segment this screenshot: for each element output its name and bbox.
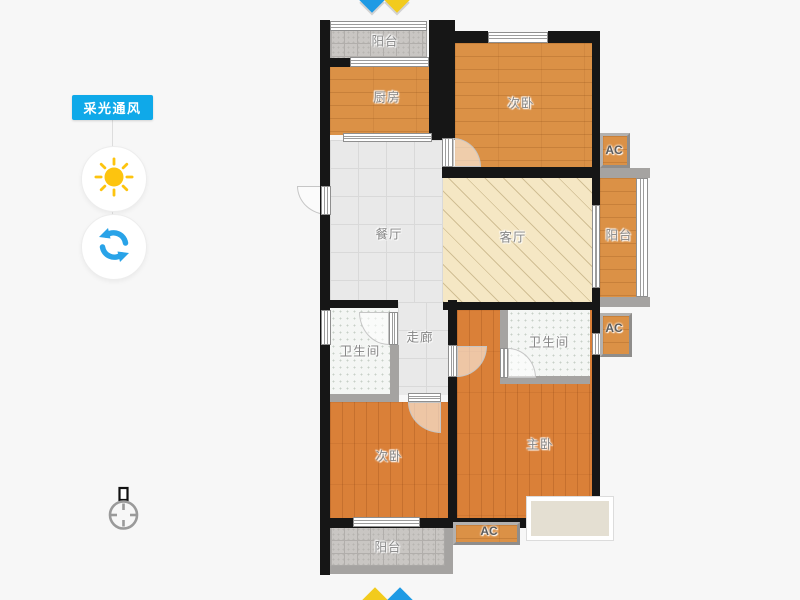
window-balcony-top: [330, 21, 427, 31]
room-label-bedroom-top: 次卧: [507, 93, 534, 112]
wall-segment: [320, 20, 330, 575]
wall-segment: [445, 522, 453, 574]
door-frame-bath-left: [389, 312, 398, 345]
rotate-button[interactable]: [81, 214, 147, 280]
room-label-bedroom-bottom: 次卧: [375, 446, 402, 465]
window-living-balcony: [592, 205, 600, 288]
wall-segment: [443, 302, 600, 310]
floor-plan-canvas: 采光通风: [0, 0, 800, 600]
door-frame-bath-right: [500, 348, 508, 378]
room-floor-corridor: [398, 302, 448, 395]
room-label-balcony-top: 阳台: [371, 31, 398, 50]
wall-segment: [592, 31, 600, 178]
window-bedroom-top: [488, 32, 548, 43]
sliding-door-kitchen-balcony: [350, 57, 429, 67]
window-balcony-right: [636, 178, 648, 297]
ac-label-top: AC: [605, 143, 622, 157]
wall-segment: [443, 31, 488, 43]
compass-dial-icon: [104, 482, 144, 539]
wall-segment: [598, 168, 650, 178]
room-label-bath-right: 卫生间: [529, 332, 570, 351]
room-label-bath-left: 卫生间: [340, 341, 381, 360]
wall-segment: [448, 300, 457, 345]
compass-marker-top-blue: [359, 0, 384, 13]
compass-marker-bottom-blue: [387, 587, 412, 600]
wall-segment: [448, 377, 457, 518]
door-frame-master: [448, 345, 457, 377]
room-label-corridor: 走廊: [406, 327, 433, 346]
ac-label-bottom: AC: [480, 524, 497, 538]
refresh-icon: [92, 223, 136, 272]
compass-marker-top-yellow: [384, 0, 409, 13]
kitchen-counter-strip: [343, 133, 432, 142]
wall-segment: [598, 297, 650, 307]
wall-segment: [442, 167, 600, 178]
lighting-ventilation-tag: 采光通风: [72, 95, 153, 120]
room-label-balcony-bottom: 阳台: [374, 537, 401, 556]
sunlight-button[interactable]: [81, 146, 147, 212]
room-label-balcony-right: 阳台: [605, 225, 632, 244]
door-frame-entrance: [321, 186, 331, 215]
wall-segment: [330, 58, 350, 67]
room-floor-dining: [330, 140, 443, 302]
door-frame-bedroom-top: [442, 138, 453, 167]
wall-segment: [592, 355, 600, 497]
room-label-dining: 餐厅: [375, 224, 402, 243]
wall-segment: [592, 178, 600, 205]
door-frame-bedroom-bottom: [408, 393, 441, 402]
ac-label-right: AC: [605, 321, 622, 335]
compass-marker-bottom-yellow: [362, 587, 387, 600]
sliding-door-bedroom-balcony: [353, 517, 420, 527]
wall-segment: [592, 310, 600, 333]
sun-icon: [92, 155, 136, 204]
ac-unit-right: [600, 313, 632, 357]
room-label-master: 主卧: [526, 434, 553, 453]
bay-window: [527, 497, 613, 540]
wall-segment: [330, 566, 453, 574]
room-label-kitchen: 厨房: [373, 87, 400, 106]
wall-segment: [330, 394, 399, 402]
room-label-living: 客厅: [499, 227, 526, 246]
wall-segment: [320, 300, 398, 308]
window-bath-left: [321, 310, 331, 345]
